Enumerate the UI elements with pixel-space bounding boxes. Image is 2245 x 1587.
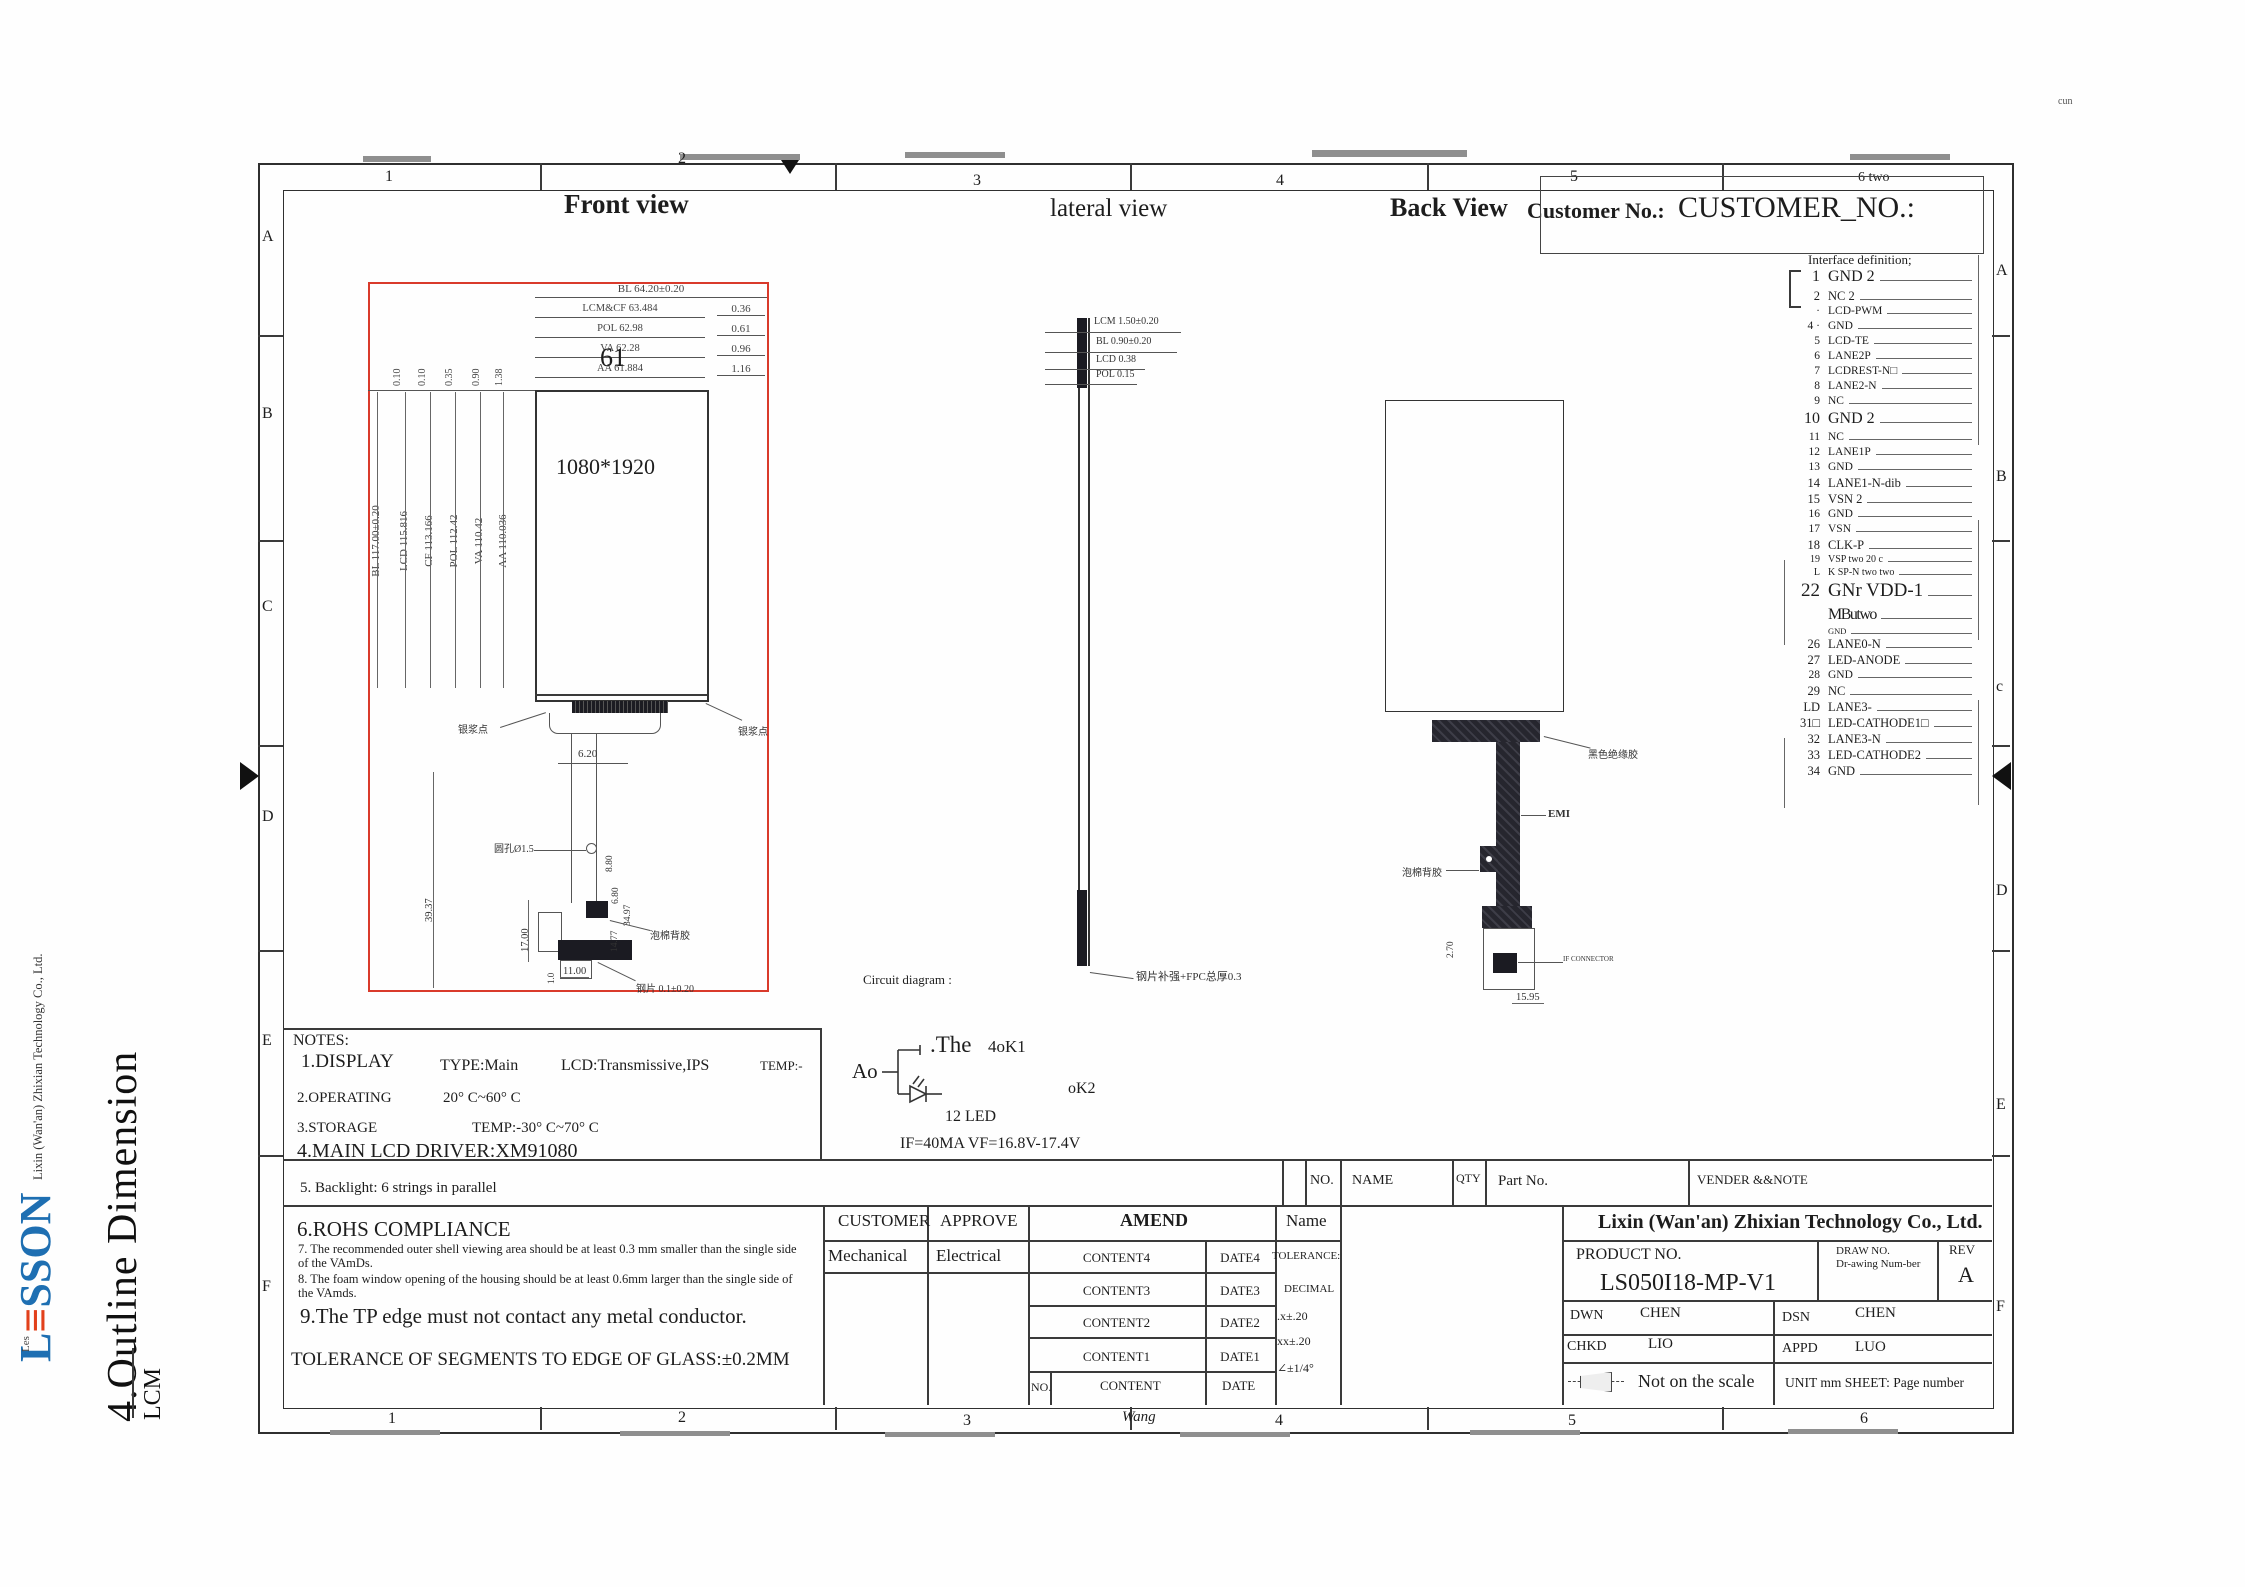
pin-name: GND (1828, 626, 1846, 636)
pin-name: LCDREST-N□ (1828, 365, 1897, 377)
logo-rest: SSON (11, 1193, 60, 1308)
scan-mark (1180, 1432, 1290, 1437)
pin-row: 31□ LED-CATHODE1□ (1792, 716, 1972, 732)
pin-number: 5 (1792, 335, 1820, 347)
pin-name: LED-CATHODE1□ (1828, 716, 1929, 731)
titleblock-line (1562, 1240, 1992, 1242)
alignment-arrow-icon (240, 762, 259, 790)
bonding-connector-strip (572, 701, 668, 713)
dimension-label: POL 112.42 (448, 470, 460, 612)
dimension-label: 0.90 (471, 344, 482, 386)
border-tick (1427, 1407, 1429, 1430)
chkd-label: CHKD (1567, 1339, 1607, 1354)
pin-connector-line (1906, 486, 1972, 487)
grid-label: 3 (963, 1412, 971, 1430)
pin-connector-line (1902, 373, 1972, 374)
notes-title: NOTES: (293, 1032, 349, 1050)
pin-number: 1 (1792, 268, 1820, 286)
pin-number: 18 (1792, 538, 1820, 553)
scan-mark (1850, 154, 1950, 160)
pin-bus-line (1978, 520, 1979, 640)
pin-name: VSN 2 (1828, 492, 1862, 507)
grid-label: C (262, 598, 273, 616)
grid-label: E (262, 1032, 272, 1050)
pin-number: 22 (1792, 580, 1820, 602)
pin-row: 29 NC (1792, 684, 1972, 700)
pin-row: 26 LANE0-N (1792, 637, 1972, 653)
border-tick (1992, 540, 2010, 542)
note-1-type: TYPE:Main (440, 1057, 518, 1075)
grid-label: 1 (385, 168, 393, 186)
dimension-offset-label: 0.96 (717, 343, 765, 356)
logo-letter-l: L (11, 1333, 60, 1362)
leader-line (1521, 815, 1546, 816)
pin-row: MButwo (1792, 606, 1972, 626)
titleblock-line (1562, 1334, 1992, 1336)
table-line (1485, 1159, 1487, 1205)
pin-number: L (1792, 567, 1820, 578)
dimension-line (535, 317, 705, 318)
circuit-spec: IF=40MA VF=16.8V-17.4V (900, 1135, 1080, 1153)
tolerance-x: .x±.20 (1277, 1310, 1308, 1323)
amend-content-cell: CONTENT3 (1028, 1283, 1205, 1299)
pin-row: 33 LED-CATHODE2 (1792, 748, 1972, 764)
dimension-row: AA 61.884 1.16 (535, 361, 767, 379)
pin-row: 17 VSN (1792, 523, 1972, 538)
pin-row: 4 · GND (1792, 320, 1972, 335)
pin-bus-line (1978, 255, 1979, 445)
foam-label: 泡棉背胶 (650, 927, 690, 942)
grid-label: D (262, 808, 274, 826)
note-9: 9.The TP edge must not contact any metal… (300, 1305, 747, 1328)
front-view-title: Front view (564, 190, 689, 220)
border-tick (258, 1155, 283, 1157)
back-fpc-tail (1496, 742, 1520, 928)
dimension-label: 0.10 (392, 344, 403, 386)
pin-number: 4 · (1792, 320, 1820, 332)
appd-label: APPD (1782, 1341, 1818, 1356)
border-tick (540, 163, 542, 190)
dimension-label: 0.35 (444, 344, 455, 386)
amend-row: CONTENT1 DATE1 (1028, 1342, 1275, 1372)
pin-row: 22 GNr VDD-1 (1792, 580, 1972, 606)
dimension-row: POL 62.98 0.61 (535, 321, 767, 339)
table-line (283, 1159, 1992, 1161)
titleblock-line (823, 1205, 825, 1405)
unit-note: UNIT mm SHEET: Page number (1785, 1376, 1964, 1391)
table-line (1282, 1159, 1284, 1205)
pin-number: 15 (1792, 492, 1820, 507)
emi-label: EMI (1548, 808, 1570, 820)
pin-row: 1 GND 2 (1792, 268, 1972, 289)
lcd-panel-outline (535, 390, 709, 702)
pin-row: 15 VSN 2 (1792, 492, 1972, 508)
pin-connector-line (1856, 531, 1972, 532)
note-1-lcd: LCD:Transmissive,IPS (561, 1057, 709, 1075)
circuit-led-count: 12 LED (945, 1108, 996, 1126)
back-connector (1493, 953, 1517, 973)
pin-bracket (1789, 270, 1791, 308)
leader-line (1518, 962, 1563, 963)
connector-note: IF CONNECTOR (1563, 955, 1614, 963)
border-tick (258, 540, 283, 542)
pin-number: 12 (1792, 446, 1820, 458)
steel-label: 钢片 0.1±0.20 (636, 980, 694, 995)
dimension-line (535, 337, 705, 338)
dimension-label: LCM 1.50±0.20 (1094, 316, 1159, 327)
drawing-page: cun L≡SSON Les Lixin (Wan'an) Zhixian Te… (0, 0, 2245, 1587)
dimension-line (535, 377, 705, 378)
pin-number: 29 (1792, 684, 1820, 699)
pin-name: MButwo (1828, 606, 1876, 624)
grid-label: A (262, 228, 274, 246)
dimension-offset-label: 1.16 (717, 363, 765, 376)
dsn-value: CHEN (1855, 1305, 1896, 1322)
dimension-line (430, 392, 431, 688)
dim-1595: 15.95 (1512, 992, 1544, 1004)
pin-row: 6 LANE2P (1792, 350, 1972, 365)
logo-sub-text: Les (20, 1312, 32, 1352)
grid-label: 6 (1860, 1410, 1868, 1428)
pin-row: 28 GND (1792, 669, 1972, 684)
customer-no-box (1540, 176, 1984, 254)
pin-connector-line (1874, 343, 1972, 344)
tolerance-note: TOLERANCE OF SEGMENTS TO EDGE OF GLASS:±… (291, 1350, 790, 1371)
pin-name: GND 2 (1828, 268, 1875, 286)
pin-name: GND (1828, 764, 1855, 779)
pin-name: GNr VDD-1 (1828, 580, 1923, 602)
table-line (1688, 1159, 1690, 1205)
note-1: 1.DISPLAY (301, 1052, 394, 1073)
pin-name: LANE1P (1828, 446, 1871, 458)
pin-connector-line (1881, 618, 1972, 619)
dimension-label: CF 113.166 (423, 470, 435, 612)
amend-row: CONTENT4 DATE4 (1028, 1243, 1275, 1273)
customer-col-header: CUSTOMER (838, 1212, 930, 1231)
lateral-bar-cap-top (1077, 318, 1087, 388)
dimension-label: POL 62.98 (535, 323, 705, 334)
pin-row: 27 LED-ANODE (1792, 653, 1972, 669)
notes-box-line (820, 1028, 822, 1159)
parts-header-partno: Part No. (1498, 1173, 1548, 1190)
border-tick (1427, 163, 1429, 190)
black-glue-label: 黑色绝缘胶 (1588, 746, 1638, 761)
name-col-header: Name (1286, 1212, 1327, 1231)
border-tick (1992, 1155, 2010, 1157)
pin-connector-line (1867, 502, 1972, 503)
table-line (1340, 1159, 1342, 1205)
interface-pin-list: 1 GND 2 2 NC 2 · LCD-PWM 4 · GND 5 LCD-T… (1792, 268, 1972, 780)
pin-name: LANE1-N-dib (1828, 476, 1901, 491)
amend-date-cell: DATE4 (1205, 1250, 1275, 1266)
grid-label: Wang (1122, 1409, 1156, 1426)
pin-name: GND 2 (1828, 410, 1875, 428)
pin-bus-line (1978, 700, 1979, 805)
dimension-label: LCD 0.38 (1096, 354, 1136, 365)
lcm-divider-line (132, 1348, 134, 1418)
fpc-hole (586, 843, 597, 854)
appd-value: LUO (1855, 1339, 1886, 1356)
titleblock-line (1937, 1240, 1939, 1300)
border-tick (1992, 950, 2010, 952)
pin-name: GND (1828, 320, 1853, 332)
pin-number: 13 (1792, 461, 1820, 473)
tolerance-title: TOLERANCE: (1272, 1250, 1340, 1262)
pin-connector-line (1869, 548, 1972, 549)
pin-name: CLK-P (1828, 538, 1864, 553)
grid-label: B (1996, 468, 2007, 486)
dimension-label: 0.10 (417, 344, 428, 386)
dim-620: 6.20 (578, 748, 597, 760)
pin-name: NC 2 (1828, 289, 1855, 304)
pin-number: 7 (1792, 365, 1820, 377)
pin-number: · (1792, 305, 1820, 317)
pin-name: VSN (1828, 523, 1851, 535)
corner-note: cun (2058, 96, 2072, 107)
pin-number: 19 (1792, 554, 1820, 565)
dwn-value: CHEN (1640, 1305, 1681, 1322)
grid-label: A (1996, 262, 2008, 280)
circuit-title: Circuit diagram : (863, 973, 952, 987)
pin-connector-line (1886, 742, 1972, 743)
grid-label: B (262, 405, 273, 423)
approve-col-header: APPROVE (940, 1212, 1017, 1231)
note-6: 6.ROHS COMPLIANCE (297, 1218, 511, 1241)
pin-name: LED-CATHODE2 (1828, 748, 1921, 763)
dwn-label: DWN (1570, 1308, 1603, 1323)
pin-row: L K SP-N two two (1792, 567, 1972, 580)
dimension-row: BL 64.20±0.20 (535, 281, 767, 299)
pin-number: 2 (1792, 289, 1820, 304)
border-tick (258, 950, 283, 952)
back-view-title: Back View (1390, 194, 1508, 223)
pin-row: 13 GND (1792, 461, 1972, 476)
border-tick (258, 335, 283, 337)
parts-header-qty: QTY (1456, 1172, 1481, 1185)
parts-header-name: NAME (1352, 1173, 1393, 1188)
side-lcm-label: LCM (140, 1348, 166, 1420)
pin-row: 34 GND (1792, 764, 1972, 780)
dimension-row: LCM&CF 63.484 0.36 (535, 301, 767, 319)
amend-content-cell: CONTENT2 (1028, 1315, 1205, 1331)
border-tick (1722, 1407, 1724, 1430)
back-fpc-flange (1482, 906, 1532, 928)
pin-connector-line (1858, 469, 1972, 470)
pin-name: GND (1828, 508, 1853, 520)
pin-row: 14 LANE1-N-dib (1792, 476, 1972, 492)
pin-number: 14 (1792, 476, 1820, 491)
dim-270: 2.70 (1446, 924, 1456, 958)
titleblock-line (1562, 1362, 1992, 1364)
pin-connector-line (1887, 313, 1972, 314)
silver-paste-label-right: 银浆点 (738, 723, 768, 738)
pin-number: 32 (1792, 732, 1820, 747)
tolerance-angle: ∠±1/4° (1277, 1362, 1314, 1375)
grid-label: 3 (973, 172, 981, 190)
scan-mark (330, 1430, 440, 1435)
scale-note: Not on the scale (1638, 1372, 1754, 1392)
grid-label: F (262, 1278, 271, 1296)
border-tick (540, 1407, 542, 1430)
titleblock-line (823, 1240, 1340, 1242)
dsn-label: DSN (1782, 1310, 1810, 1325)
dimension-line (480, 392, 481, 688)
logo-letter-e-icon: ≡ (11, 1308, 60, 1333)
pin-number: 28 (1792, 669, 1820, 681)
led-symbol-icon (880, 1042, 950, 1112)
note-7: 7. The recommended outer shell viewing a… (298, 1243, 808, 1271)
amend-date-label: DATE (1222, 1379, 1255, 1393)
dimension-offset-label: 0.36 (717, 303, 765, 316)
dimension-line (377, 392, 378, 688)
pin-connector-line (1860, 774, 1972, 775)
amend-header: AMEND (1120, 1211, 1188, 1231)
note-2-val: 20° C~60° C (443, 1090, 521, 1107)
circuit-k1-label: 4oK1 (988, 1038, 1026, 1057)
circuit-k2-label: oK2 (1068, 1080, 1096, 1098)
dimension-line (1045, 384, 1137, 385)
interface-title: Interface definition; (1808, 253, 1912, 267)
pin-number: 10 (1792, 410, 1820, 428)
dimension-line (1045, 332, 1181, 333)
scan-mark (905, 152, 1005, 158)
scan-mark (885, 1432, 995, 1437)
parts-header-vender: VENDER &&NOTE (1697, 1173, 1808, 1187)
back-view-outline (1385, 400, 1564, 712)
dimension-line (503, 392, 504, 688)
amend-date-cell: DATE1 (1205, 1349, 1275, 1365)
titleblock-line (927, 1205, 929, 1405)
pin-row: 32 LANE3-N (1792, 732, 1972, 748)
resolution-label: 1080*1920 (556, 455, 655, 479)
pin-connector-line (1851, 633, 1972, 634)
pin-name: LANE3-N (1828, 732, 1881, 747)
note-8: 8. The foam window opening of the housin… (298, 1273, 808, 1301)
pin-number: 27 (1792, 653, 1820, 668)
dimension-row: VA 62.28 0.96 (535, 341, 767, 359)
dim-10: 1.0 (546, 962, 556, 984)
dimension-label: VA 110.42 (473, 470, 485, 612)
electrical-cell: Electrical (936, 1247, 1001, 1266)
lateral-view-title: lateral view (1050, 195, 1167, 223)
dimension-label: POL 0.15 (1096, 369, 1135, 380)
scan-mark (1470, 1430, 1580, 1435)
draw-no-value: Dr-awing Num-ber (1836, 1258, 1928, 1270)
grid-label: 2 (678, 150, 686, 168)
note-5: 5. Backlight: 6 strings in parallel (300, 1180, 497, 1197)
pin-number: 6 (1792, 350, 1820, 362)
amend-date-cell: DATE3 (1205, 1283, 1275, 1299)
circuit-ao-label: Ao (852, 1060, 878, 1083)
amend-row: CONTENT2 DATE2 (1028, 1308, 1275, 1338)
scan-mark (1312, 150, 1467, 157)
note-3: 3.STORAGE (297, 1120, 377, 1137)
pin-row: · LCD-PWM (1792, 305, 1972, 320)
pin-connector-line (1858, 516, 1972, 517)
pin-connector-line (1899, 574, 1972, 575)
note-3-val: TEMP:-30° C~70° C (472, 1120, 599, 1137)
titleblock-line (1817, 1240, 1819, 1300)
pin-number: 16 (1792, 508, 1820, 520)
dimension-label: BL 117.00±0.20 (370, 470, 382, 612)
pin-name: NC (1828, 395, 1844, 407)
pin-number: 11 (1792, 431, 1820, 443)
pin-connector-line (1880, 422, 1972, 423)
pin-row: 7 LCDREST-N□ (1792, 365, 1972, 380)
pin-row: 12 LANE1P (1792, 446, 1972, 461)
pin-name: LCD-TE (1828, 335, 1869, 347)
chkd-value: LIO (1648, 1336, 1673, 1353)
pin-name: LCD-PWM (1828, 305, 1882, 317)
tolerance-xx: xx±.20 (1277, 1335, 1311, 1348)
lateral-note: 钢片补强+FPC总厚0.3 (1136, 968, 1242, 984)
pin-connector-line (1876, 454, 1972, 455)
titleblock-line (1562, 1300, 1992, 1302)
pin-name: LED-ANODE (1828, 653, 1900, 668)
note-1-temp: TEMP:- (760, 1059, 803, 1073)
dimension-label: BL 64.20±0.20 (535, 283, 767, 295)
pin-name: GND (1828, 461, 1853, 473)
pin-connector-line (1928, 595, 1972, 596)
pin-row: 18 CLK-P (1792, 538, 1972, 554)
product-no-label: PRODUCT NO. (1576, 1246, 1682, 1264)
lateral-panel-bar (1078, 318, 1090, 966)
pin-number: 9 (1792, 395, 1820, 407)
grid-label: 4 (1276, 172, 1284, 190)
pin-connector-line (1876, 358, 1972, 359)
pin-connector-line (1882, 388, 1972, 389)
amend-content-cell: CONTENT1 (1028, 1349, 1205, 1365)
note-2: 2.OPERATING (297, 1090, 392, 1107)
pin-row: 11 NC (1792, 431, 1972, 446)
amend-row: CONTENT3 DATE3 (1028, 1276, 1275, 1306)
titleblock-line (1773, 1300, 1775, 1405)
grid-label: 5 (1568, 1412, 1576, 1430)
pin-connector-line (1905, 663, 1972, 664)
lateral-bar-cap-bottom (1077, 890, 1087, 966)
dimension-line (405, 392, 406, 688)
pin-row: LD LANE3- (1792, 700, 1972, 716)
parts-header-no: NO. (1310, 1173, 1334, 1188)
amend-date-cell: DATE2 (1205, 1315, 1275, 1331)
pin-row: 2 NC 2 (1792, 289, 1972, 305)
grid-label: 4 (1275, 1412, 1283, 1430)
pin-name: NC (1828, 431, 1844, 443)
titleblock-line (1562, 1205, 1564, 1405)
grid-label: 1 (388, 1410, 396, 1428)
pin-row: 19 VSP two 20 c (1792, 554, 1972, 567)
dimension-line (535, 297, 767, 298)
pin-number: 33 (1792, 748, 1820, 763)
amend-content-label: CONTENT (1100, 1379, 1161, 1393)
pin-connector-line (1888, 561, 1972, 562)
pin-number: 26 (1792, 637, 1820, 652)
panel-bottom-line (535, 694, 707, 696)
silver-paste-label-left: 银浆点 (458, 721, 488, 736)
grid-label: c (1996, 678, 2003, 696)
pin-connector-line (1858, 677, 1972, 678)
pin-connector-line (1858, 328, 1972, 329)
back-foam-label: 泡棉背胶 (1402, 864, 1442, 879)
pin-row: 8 LANE2-N (1792, 380, 1972, 395)
border-tick (1992, 745, 2010, 747)
dimension-line (1045, 352, 1177, 353)
dim-3497: 34.97 (623, 884, 633, 926)
hole-label: 圆孔Ø1.5 (494, 840, 534, 855)
product-no-value: LS050I18-MP-V1 (1600, 1270, 1776, 1296)
dim-1700: 17.00 (520, 906, 531, 952)
dimension-line (368, 390, 535, 391)
